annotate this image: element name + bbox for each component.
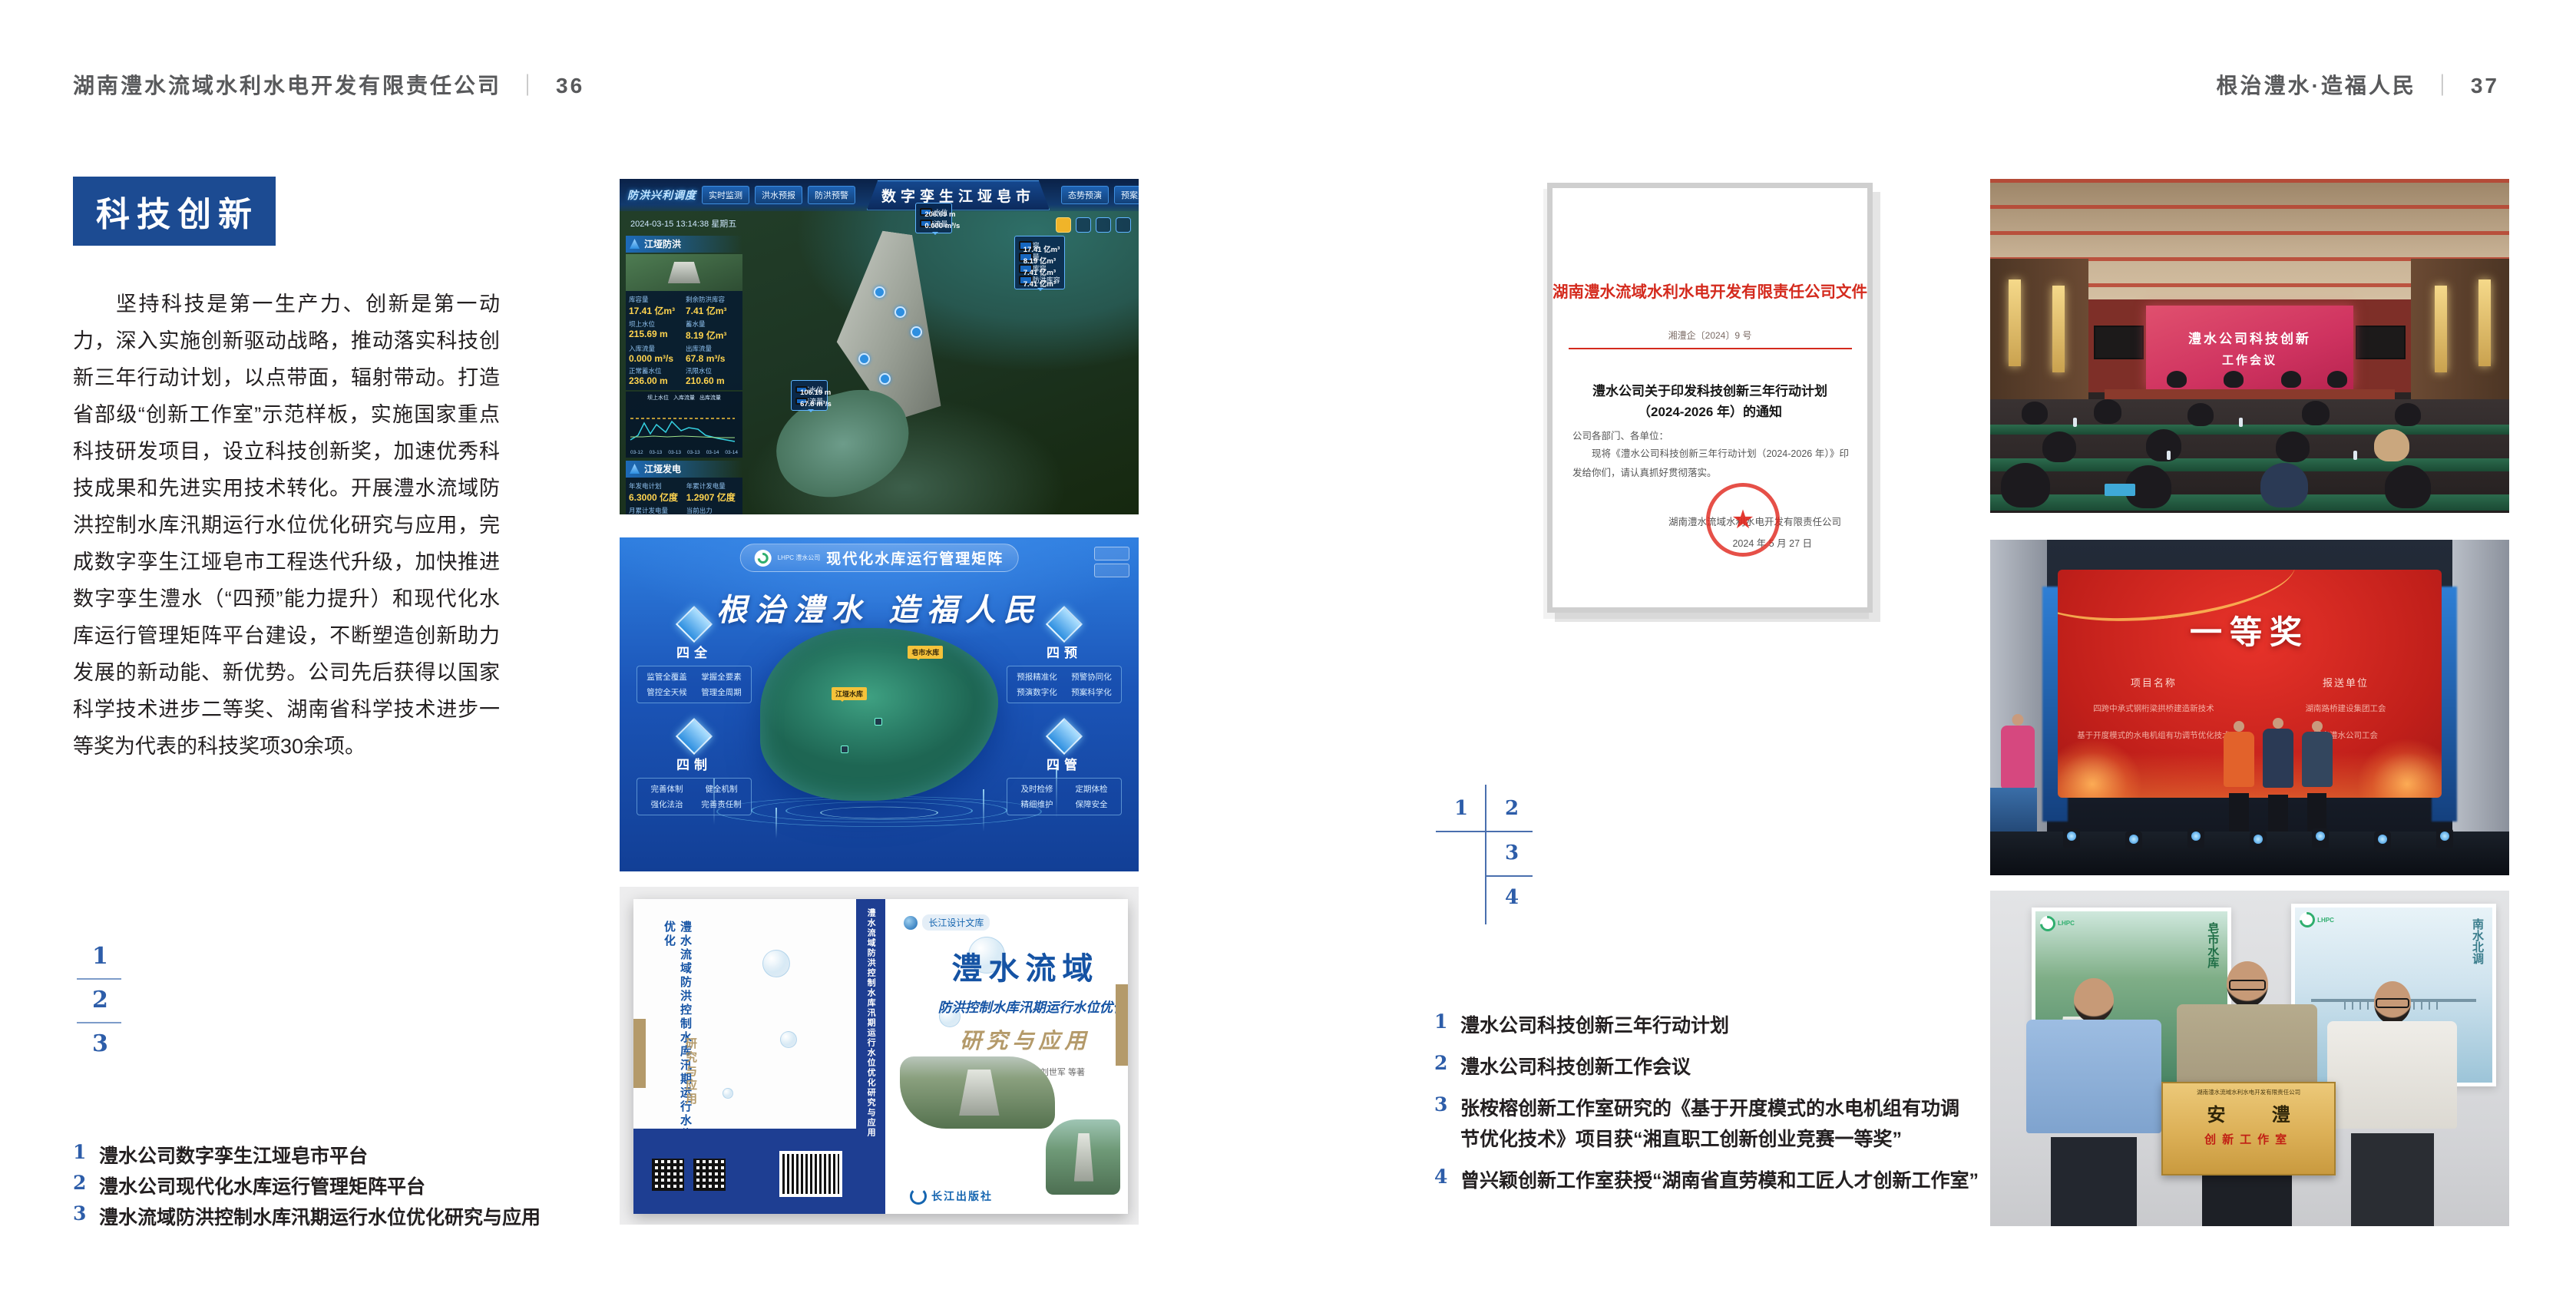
bubble-art <box>780 1031 797 1048</box>
matrix-node-siguan: 四管 及时检修定期体检 精细维护保障安全 <box>1007 723 1122 815</box>
awardee-orange <box>2224 721 2254 841</box>
notice-salutation: 公司各部门、各单位： <box>1572 428 1668 442</box>
attendee-silhouette <box>2276 431 2310 462</box>
stat: 年累计发电量1.2907 亿度 <box>686 481 739 504</box>
matrix-node-sizhi: 四制 完善体制健全机制 强化法治完善责任制 <box>637 723 752 815</box>
plaque-header: 湖南澧水流域水利水电开发有限责任公司 <box>2163 1088 2334 1096</box>
header-right: 根治澧水·造福人民｜37 <box>2217 69 2500 100</box>
lhpc-logo: LHPC <box>2300 912 2334 927</box>
awardee-head <box>2234 721 2244 732</box>
caption-row: 4 曾兴颖创新工作室获授“湖南省直劳模和工匠人才创新工作室” <box>1434 1165 1987 1196</box>
spine-title: 澧水流域防洪控制水库汛期运行水位优化研究与应用 <box>865 908 877 1139</box>
upstream-level-tag: 坝上水位206.69 m 入库流量0.000 m³/s <box>915 203 952 233</box>
seal-star-icon: ★ <box>1731 504 1754 535</box>
node-items: 及时检修定期体检 精细维护保障安全 <box>1007 778 1122 815</box>
power-panel-title: 江垭发电 <box>626 461 742 478</box>
stat: 当前出力0.00 MW <box>686 506 739 514</box>
header-divider: ｜ <box>517 74 541 98</box>
matrix-title: 现代化水库运行管理矩阵 <box>826 547 1004 568</box>
node-items: 预报精准化预警协同化 预演数字化预案科学化 <box>1007 666 1122 703</box>
water-bottle <box>2167 451 2171 460</box>
awardee-body <box>2302 732 2333 787</box>
basin-terrain-map: 皂市水库 江垭水库 <box>760 628 998 801</box>
dashboard-tab-realtime: 实时监测 <box>702 186 749 204</box>
person-blue-polo <box>2026 978 2161 1226</box>
stage-arch-right <box>2452 540 2509 875</box>
caption-text: 澧水公司科技创新工作会议 <box>1460 1052 1691 1083</box>
caption-number: 1 <box>1434 1010 1460 1033</box>
book-spread: 澧水流域防洪控制水库汛期运行水位优化 研究与应用 澧水流域防洪控制水库汛期运行水… <box>633 899 1128 1214</box>
caption-text: 澧水流域防洪控制水库汛期运行水位优化研究与应用 <box>99 1202 541 1233</box>
back-accent-block <box>633 1019 646 1088</box>
publisher-row: 长江出版社 <box>910 1188 993 1205</box>
stat: 正常蓄水位236.00 m <box>629 366 683 386</box>
dashboard-left-panel: 江垭防洪 库容量17.41 亿m³ 剩余防洪库容7.41 亿m³ 坝上水位215… <box>626 233 742 514</box>
index-divider <box>77 1022 121 1023</box>
caption-number: 3 <box>73 1202 99 1225</box>
notice-signature: 湖南澧水流域水利水电开发有限责任公司 <box>1553 514 1852 528</box>
index-divider <box>77 978 121 980</box>
workshop-plaque: 湖南澧水流域水利水电开发有限责任公司 安 澧 创新工作室 <box>2161 1082 2336 1175</box>
flood-panel-title: 江垭防洪 <box>626 236 742 253</box>
caption-text: 曾兴颖创新工作室获授“湖南省直劳模和工匠人才创新工作室” <box>1460 1165 1979 1196</box>
attendee-silhouette <box>2146 429 2181 461</box>
dam-photo-jiangya <box>900 1056 1055 1129</box>
downstream-level-tag: 坝下水位106.19 m 出库流量67.8 m³/s <box>791 380 828 411</box>
bubble-art <box>723 1088 733 1099</box>
book-title-tail: 研究与应用 <box>938 1024 1113 1055</box>
section-title-badge: 科技创新 <box>73 177 276 246</box>
pillar-lamp <box>2052 286 2065 372</box>
monitor-point-icon <box>911 326 922 338</box>
figure-index-1: 1 <box>1454 797 1468 820</box>
lhpc-logo-icon <box>2037 913 2058 934</box>
lhpc-logo-text: LHPC 澧水公司 <box>778 554 821 561</box>
header-left: 湖南澧水流域水利水电开发有限责任公司｜36 <box>73 69 584 100</box>
document-number: 湘澧企〔2024〕9 号 <box>1553 329 1867 342</box>
stat: 入库流量0.000 m³/s <box>629 344 683 364</box>
library-logo-row: 长江设计文库 <box>904 914 990 931</box>
stage-light-fixture <box>2250 832 2267 851</box>
awardee-blue <box>2302 721 2333 841</box>
dam-photo-zaoshi <box>1046 1119 1121 1195</box>
attendee-silhouette <box>2187 403 2214 426</box>
chart-legend: 坝上水位 入库流量 出库流量 <box>627 394 741 402</box>
figure-award-ceremony-photo: 一等奖 项目名称 报送单位 四跨中承式钢桁梁拱桥建造新技术湖南路桥建设集团工会 … <box>1990 540 2509 875</box>
caption-number: 4 <box>1434 1165 1460 1188</box>
person-trousers <box>2051 1137 2138 1226</box>
host-head <box>2012 714 2023 726</box>
user-icon <box>1056 217 1071 233</box>
alert-icon <box>1116 217 1131 233</box>
presenter-suit <box>2263 718 2293 842</box>
power-stats: 年发电计划6.3000 亿度 年累计发电量1.2907 亿度 月累计发电量335… <box>626 478 742 514</box>
meeting-right-wall <box>2411 259 2509 412</box>
notice-title-line1: 澧水公司关于印发科技创新三年行动计划 <box>1553 380 1867 399</box>
plaque-title: 安 澧 <box>2163 1099 2334 1126</box>
dashboard-brand: 防洪兴利调度 <box>627 187 696 203</box>
award-col-org: 报送单位 <box>2250 675 2442 689</box>
dashboard-tab-forecast: 洪水预报 <box>755 186 802 204</box>
glasses-icon <box>2229 980 2266 990</box>
caption-number: 2 <box>1434 1052 1460 1074</box>
index-divider <box>1485 875 1533 877</box>
figure-digital-twin-dashboard: 防洪兴利调度 实时监测 洪水预报 防洪预警 数字孪生江垭皂市 态势预演 预案生成… <box>620 179 1139 514</box>
index-divider <box>1485 785 1486 924</box>
presenter-body <box>2263 729 2293 789</box>
dashboard-top-nav: 防洪兴利调度 实时监测 洪水预报 防洪预警 数字孪生江垭皂市 态势预演 预案生成… <box>620 179 1139 211</box>
award-title: 一等奖 <box>2058 607 2442 653</box>
matrix-top-button <box>1094 547 1129 560</box>
attendee-silhouette <box>2260 463 2308 508</box>
person-trousers <box>2351 1133 2434 1226</box>
stat: 蓄水量8.19 亿m³ <box>686 319 739 342</box>
brochure-spread: 湖南澧水流域水利水电开发有限责任公司｜36 根治澧水·造福人民｜37 科技创新 … <box>0 0 2576 1306</box>
notice-body: 现将《澧水公司科技创新三年行动计划（2024-2026 年）》印发给你们，请认真… <box>1572 445 1849 483</box>
stage-light-fixture <box>2125 832 2142 851</box>
pillar-lamp <box>2009 279 2021 366</box>
stat: 库容量17.41 亿m³ <box>629 295 683 317</box>
header-divider: ｜ <box>2432 74 2455 98</box>
attendee-silhouette <box>2385 465 2431 508</box>
panelist-silhouette <box>2327 371 2347 388</box>
caption-number: 3 <box>1434 1093 1460 1116</box>
maintenance-diamond-icon <box>1046 718 1083 755</box>
dashboard-toolbar-icons <box>1056 217 1131 233</box>
stage-light-fixture <box>2374 832 2391 851</box>
stage-light-fixture <box>2312 828 2329 848</box>
water-bottle <box>2353 451 2357 460</box>
map-pin-zaoshi: 皂市水库 <box>908 646 943 659</box>
panelist-silhouette <box>2224 371 2244 388</box>
monitor-point-icon <box>874 286 885 298</box>
stage-light-fixture <box>2063 828 2080 848</box>
host-body <box>2001 726 2035 789</box>
institution-diamond-icon <box>676 718 713 755</box>
person-head <box>2074 978 2114 1023</box>
panelist-silhouette <box>2167 371 2187 388</box>
book-spine: 澧水流域防洪控制水库汛期运行水位优化研究与应用 <box>856 899 886 1214</box>
attendee-silhouette <box>2094 399 2121 424</box>
front-accent-block <box>1116 984 1128 1066</box>
figure-index-2: 2 <box>1505 797 1519 820</box>
changjiang-logo-icon <box>904 916 918 930</box>
figure-index-4: 4 <box>1505 886 1519 909</box>
meeting-left-wall <box>1990 259 2088 412</box>
glasses-icon <box>2376 998 2409 1008</box>
awardee-head <box>2312 721 2323 732</box>
body-paragraph: 坚持科技是第一生产力、创新是第一动力，深入实施创新驱动战略，推动落实科技创新三年… <box>73 286 500 765</box>
pillar-lamp <box>2435 286 2447 372</box>
company-name: 湖南澧水流域水利水电开发有限责任公司 <box>73 74 501 98</box>
book-title-main: 澧水流域 <box>938 944 1113 988</box>
page-number-right: 37 <box>2471 74 2499 98</box>
poster-right-title: 南水北调 <box>2470 918 2486 964</box>
document-red-title: 湖南澧水流域水利水电开发有限责任公司文件 <box>1553 279 1867 302</box>
qr-code <box>693 1159 726 1191</box>
light-pillar <box>775 808 777 838</box>
dam-aerial-thumbnail <box>626 254 742 291</box>
tissue-box <box>2105 484 2135 496</box>
screen-title-line2: 工作会议 <box>2222 352 2277 368</box>
stat: 剩余防洪库容7.41 亿m³ <box>686 295 739 317</box>
company-seal-stamp: ★ <box>1706 483 1780 557</box>
dashboard-timestamp: 2024-03-15 13:14:38 星期五 <box>630 217 736 230</box>
attendee-silhouette <box>2022 402 2048 425</box>
person-shirt <box>2327 1021 2457 1129</box>
flood-stats: 库容量17.41 亿m³ 剩余防洪库容7.41 亿m³ 坝上水位215.69 m… <box>626 291 742 390</box>
attendee-silhouette <box>2001 463 2050 508</box>
award-col-project: 项目名称 <box>2058 675 2250 689</box>
caption-row: 3 澧水流域防洪控制水库汛期运行水位优化研究与应用 <box>73 1202 549 1233</box>
book-back-cover: 澧水流域防洪控制水库汛期运行水位优化 研究与应用 <box>633 899 856 1214</box>
water-level-chart: 坝上水位 入库流量 出库流量 03-12 03-13 03-13 03-13 0… <box>626 392 742 458</box>
book-title-sub: 防洪控制水库汛期运行水位优化 <box>938 997 1113 1017</box>
book-front-cover: 长江设计文库 澧水流域 防洪控制水库汛期运行水位优化 研究与应用 洪兴骏 沈坤民… <box>885 899 1128 1214</box>
caption-number: 2 <box>73 1172 99 1194</box>
station-marker-icon <box>841 746 848 753</box>
stage-light-fixture <box>2187 828 2204 848</box>
figure-book-cover: 澧水流域防洪控制水库汛期运行水位优化 研究与应用 澧水流域防洪控制水库汛期运行水… <box>620 887 1139 1225</box>
dashboard-tab-warning: 防洪预警 <box>808 186 855 204</box>
wall-tv-screen <box>2094 326 2144 359</box>
caption-number: 1 <box>73 1141 99 1163</box>
figure-workshop-plaque-photo: LHPC 皂市水库 LHPC 南水北调 <box>1990 891 2509 1226</box>
wall-tv-screen <box>2356 326 2406 359</box>
caption-row: 2 澧水公司现代化水库运行管理矩阵平台 <box>73 1172 534 1202</box>
figure-official-document: 湖南澧水流域水利水电开发有限责任公司文件 湘澧企〔2024〕9 号 澧水公司关于… <box>1547 183 1873 613</box>
node-items: 完善体制健全机制 强化法治完善责任制 <box>637 778 752 815</box>
page-number-left: 36 <box>556 74 584 98</box>
matrix-slogan: 根治澧水 造福人民 <box>716 585 1042 630</box>
locate-icon <box>1096 217 1111 233</box>
stat: 坝上水位215.69 m <box>629 319 683 342</box>
matrix-node-siquan: 四全 监管全覆盖掌握全要素 管控全天候管理全周期 <box>637 611 752 703</box>
chart-x-labels: 03-12 03-13 03-13 03-13 03-14 03-14 <box>627 450 741 455</box>
caption-text: 澧水公司现代化水库运行管理矩阵平台 <box>99 1172 425 1202</box>
matrix-top-button <box>1094 564 1129 577</box>
back-bottom-band <box>633 1129 856 1214</box>
plaque-subtitle: 创新工作室 <box>2163 1131 2334 1147</box>
matrix-node-siyu: 四预 预报精准化预警协同化 预演数字化预案科学化 <box>1007 611 1122 703</box>
station-marker-icon <box>875 718 882 726</box>
pillar-lamp <box>2478 279 2491 366</box>
attendee-silhouette <box>2395 403 2421 426</box>
slogan: 根治澧水·造福人民 <box>2217 74 2416 98</box>
figure-index-3: 3 <box>92 1030 108 1057</box>
awardee-body <box>2224 732 2254 787</box>
dashboard-title: 数字孪生江垭皂市 <box>867 180 1050 210</box>
layers-icon <box>1076 217 1091 233</box>
caption-row: 1 澧水公司数字孪生江垭皂市平台 <box>73 1141 534 1172</box>
desk-row <box>1990 494 2509 511</box>
bubble-art <box>762 950 790 977</box>
forecast-diamond-icon <box>1046 606 1083 643</box>
map-pin-jiangya: 江垭水库 <box>832 687 867 700</box>
award-column-headers: 项目名称 报送单位 <box>2058 675 2442 689</box>
dashboard-tab-plan: 预案生成 <box>1114 186 1139 204</box>
caption-text: 澧水公司数字孪生江垭皂市平台 <box>99 1141 368 1172</box>
screen-title-line1: 澧水公司科技创新 <box>2188 328 2311 347</box>
qr-code <box>652 1159 684 1191</box>
award-row: 四跨中承式钢桁梁拱桥建造新技术湖南路桥建设集团工会 <box>2058 703 2442 714</box>
caption-row: 2 澧水公司科技创新工作会议 <box>1434 1052 1987 1083</box>
index-divider <box>1436 831 1533 832</box>
caption-text: 张桉榕创新工作室研究的《基于开度模式的水电机组有功调节优化技术》项目获“湘直职工… <box>1460 1093 1959 1155</box>
document-red-rule <box>1569 348 1852 349</box>
stat: 月累计发电量3359.21 万度 <box>629 506 683 514</box>
water-bottle <box>2073 418 2077 427</box>
stat: 年发电计划6.3000 亿度 <box>629 481 683 504</box>
stage-light-fixture <box>2436 828 2453 848</box>
capacity-tag: 总库容17.41 亿m³ 蓄水量8.19 亿m³ 防洪库容7.41 亿m³ 剩余… <box>1014 236 1065 289</box>
notice-title-line2: （2024-2026 年）的通知 <box>1553 401 1867 420</box>
caption-text: 澧水公司科技创新三年行动计划 <box>1460 1010 1729 1041</box>
barcode <box>779 1151 842 1197</box>
library-name: 长江设计文库 <box>922 914 990 931</box>
attendee-silhouette <box>2374 429 2409 461</box>
panelist-silhouette <box>2281 371 2301 388</box>
person-shirt <box>2026 1020 2161 1134</box>
water-bottle <box>2239 418 2243 427</box>
chart-plot <box>627 402 738 446</box>
attendee-silhouette <box>2042 431 2076 462</box>
lhpc-logo-icon <box>755 550 772 567</box>
desk-row <box>1990 425 2509 435</box>
presenter-head <box>2273 718 2283 729</box>
dashboard-tab-rehearsal: 态势预演 <box>1061 186 1109 204</box>
stat: 汛限水位210.60 m <box>686 366 739 386</box>
node-items: 监管全覆盖掌握全要素 管控全天候管理全周期 <box>637 666 752 703</box>
monitor-diamond-icon <box>676 606 713 643</box>
publisher-name: 长江出版社 <box>931 1189 993 1204</box>
attendee-silhouette <box>2302 401 2330 425</box>
figure-index-2: 2 <box>92 987 108 1013</box>
figure-management-matrix: LHPC 澧水公司 现代化水库运行管理矩阵 根治澧水 造福人民 皂市水库 江垭水… <box>620 537 1139 871</box>
radar-ring <box>820 807 938 819</box>
person-white-tee <box>2327 981 2457 1226</box>
figure-index-3: 3 <box>1505 841 1519 865</box>
lhpc-logo: LHPC <box>2040 916 2075 931</box>
figure-index-1: 1 <box>92 943 108 970</box>
caption-row: 1 澧水公司科技创新三年行动计划 <box>1434 1010 1987 1041</box>
light-pillar <box>983 789 984 832</box>
stat: 出库流量67.8 m³/s <box>686 344 739 364</box>
figure-index-grid: 1 2 3 4 <box>1434 785 1536 927</box>
caption-row: 3 张桉榕创新工作室研究的《基于开度模式的水电机组有功调节优化技术》项目获“湘直… <box>1434 1093 1972 1155</box>
figure-innovation-meeting-photo: 澧水公司科技创新 工作会议 <box>1990 179 2509 513</box>
press-logo-icon <box>910 1188 927 1205</box>
lhpc-logo-icon <box>2297 909 2318 931</box>
audience-area <box>1990 399 2509 513</box>
matrix-header: LHPC 澧水公司 现代化水库运行管理矩阵 <box>740 544 1019 572</box>
